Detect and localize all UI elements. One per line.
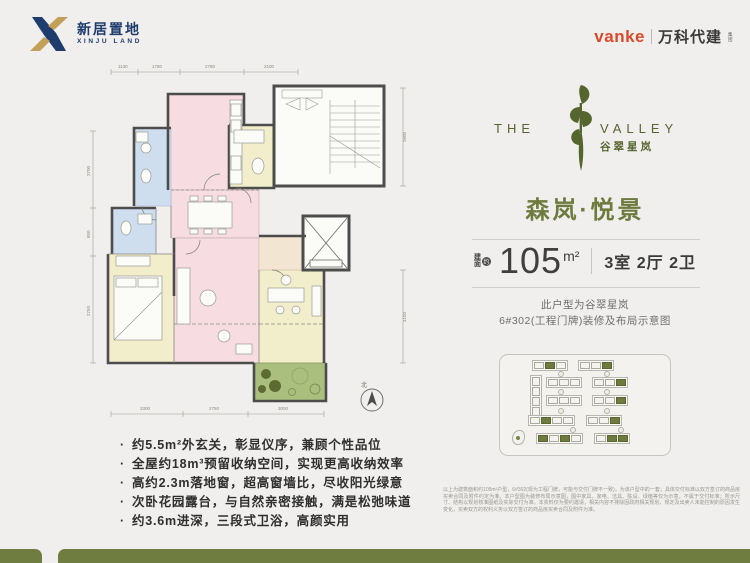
site-building [592,377,628,388]
dim-left-2: 850 [86,230,91,238]
valley-leaf-icon [564,77,598,173]
vanke-suffix: 集团 [728,32,734,42]
site-building [532,360,568,371]
valley-logo-cn: 谷翠星岚 [600,139,654,154]
dim-right-2: 4150 [402,311,407,322]
footer-bar-left [0,549,42,563]
dim-left-3: 2750 [86,305,91,316]
unit-note-line1: 此户型为谷翠星岚 [470,297,700,313]
tree-icon [558,408,564,414]
room-layout: 3室 2厅 2卫 [604,249,696,273]
site-building [528,415,575,426]
brand-name-cn: 新居置地 [77,22,142,36]
vanke-name-cn: 万科代建 [658,26,722,47]
valley-logo-valley: VALLEY [600,121,678,136]
dim-top-2: 1780 [152,64,163,69]
dim-left-1: 3700 [86,165,91,176]
area-unit: m² [563,248,579,264]
site-building [546,377,582,388]
dim-right-1: 2600 [402,131,407,142]
dim-bottom-3: 3000 [278,406,289,411]
area-prefix-char1: 建 [474,254,481,261]
feature-text: 全屋约18m³预留收纳空间，实现更高收纳效率 [132,455,404,474]
tree-icon [604,371,610,377]
site-building [592,395,628,406]
dim-top-4: 2100 [264,64,275,69]
area-prefix: 建 面 约 [474,254,491,268]
unit-note: 此户型为谷翠星岚 6#302(工程门牌)装修及布局示意图 [470,297,700,329]
feature-item: ·约3.6m进深，三段式卫浴，高颜实用 [120,512,420,531]
disclaimer-text: 以上为建筑面积约105m²户型，6#302(现为工程门牌，可能与交付门牌不一致)… [443,487,740,513]
vanke-logo: vanke 万科代建 集团 [594,26,734,47]
dim-top-3: 2780 [205,64,216,69]
xinju-x-icon [30,17,70,51]
feature-text: 约3.6m进深，三段式卫浴，高颜实用 [132,512,350,531]
approx-badge: 约 [482,257,491,266]
unit-note-line2: 6#302(工程门牌)装修及布局示意图 [470,313,700,329]
tree-icon [618,427,624,433]
site-building-tower [530,375,542,418]
site-building [578,360,614,371]
site-building [594,433,630,444]
site-building [586,415,622,426]
floor-plan: 1130 1780 2780 2100 3300 2750 3000 3700 … [86,56,426,428]
area-prefix-char2: 面 [474,261,481,268]
feature-text: 次卧花园露台，与自然亲密接触，满是松弛味道 [132,493,411,512]
site-building [546,395,582,406]
site-building [536,433,583,444]
compass-label: 北 [361,381,367,389]
stairwell [274,86,384,186]
footer-bar-right [58,549,750,563]
feature-text: 高约2.3m落地窗，超高窗墙比，尽收阳光绿意 [132,474,403,493]
pond-icon [512,430,525,445]
divider-bottom [472,287,700,288]
dimension-line-left [90,131,96,363]
dim-bottom-2: 2750 [209,406,220,411]
valley-logo-the: THE [494,121,535,136]
area-value: 105 [499,243,562,279]
feature-item: ·次卧花园露台，与自然亲密接触，满是松弛味道 [120,493,420,512]
area-divider [591,248,592,274]
feature-list: ·约5.5m²外玄关，彰显仪序，兼顾个性品位 ·全屋约18m³预留收纳空间，实现… [120,436,420,531]
tree-icon [604,408,610,414]
tree-icon [558,371,564,377]
compass-icon: 北 [361,381,383,411]
feature-item: ·高约2.3m落地窗，超高窗墙比，尽收阳光绿意 [120,474,420,493]
vanke-divider [651,29,652,44]
unit-title: 森岚·悦景 [470,190,700,225]
room-bedroom-right [259,270,324,363]
feature-item: ·全屋约18m³预留收纳空间，实现更高收纳效率 [120,455,420,474]
site-plan-card [499,354,671,456]
tree-icon [604,389,610,395]
dim-top-1: 1130 [118,64,128,69]
tree-icon [558,389,564,395]
dimension-line-top [111,69,298,75]
vanke-wordmark: vanke [594,27,645,47]
dim-bottom-1: 3300 [140,406,151,411]
brand-name-en: XINJU LAND [77,39,142,46]
room-hall [259,236,306,270]
valley-logo: THE VALLEY 谷翠星岚 [478,75,690,183]
feature-text: 约5.5m²外玄关，彰显仪序，兼顾个性品位 [132,436,381,455]
xinju-land-logo: 新居置地 XINJU LAND [30,17,142,51]
tree-icon [570,427,576,433]
feature-item: ·约5.5m²外玄关，彰显仪序，兼顾个性品位 [120,436,420,455]
area-row: 建 面 约 105 m² 3室 2厅 2卫 [470,243,700,279]
dimension-line-bottom [111,411,324,417]
